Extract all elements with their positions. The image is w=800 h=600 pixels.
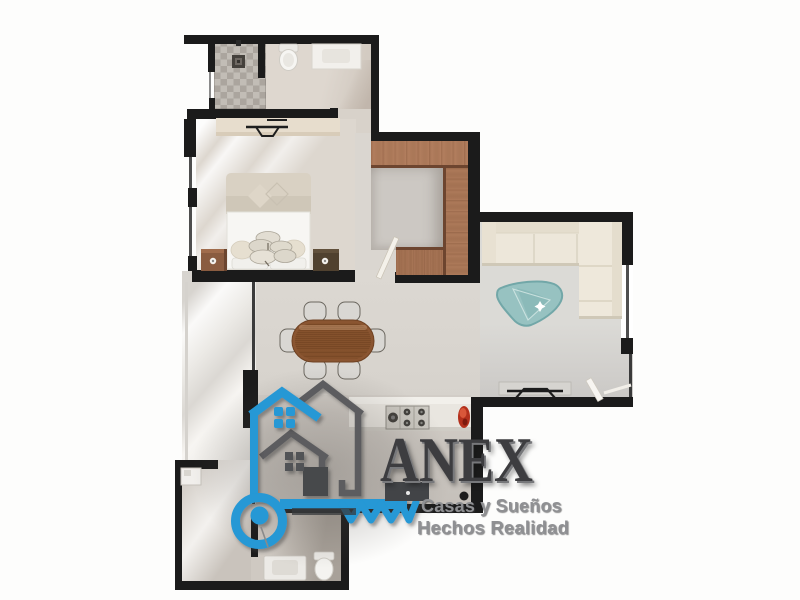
svg-text:ANEX: ANEX bbox=[380, 424, 533, 495]
svg-text:Casas y Sueños: Casas y Sueños bbox=[421, 496, 562, 516]
svg-text:Hechos Realidad: Hechos Realidad bbox=[417, 517, 569, 538]
